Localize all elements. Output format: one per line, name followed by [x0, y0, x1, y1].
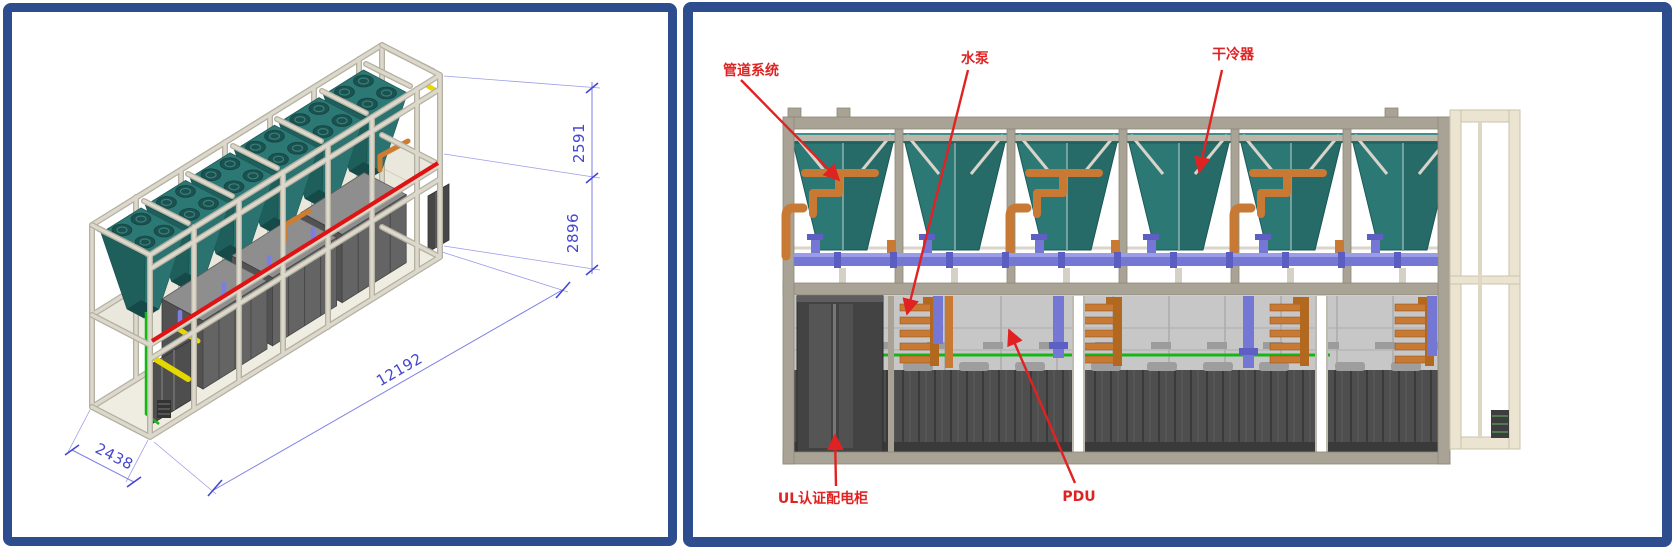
dim-lower-height: 2896 — [564, 213, 582, 253]
ul-cabinet-label: UL认证配电柜 — [778, 490, 868, 507]
ul-cabinet-arrow — [835, 435, 836, 486]
end-frame-bay — [1450, 110, 1520, 449]
bottom-beam — [783, 452, 1450, 464]
elevation-view-drawing: 管道系统 水泵 干冷器 UL认证配电柜 PDU — [693, 12, 1662, 537]
dimension-height-lower: 2896 — [444, 213, 600, 275]
isometric-view-panel: 2591 2896 12192 2438 — [3, 3, 677, 546]
ul-power-cabinet — [797, 296, 883, 452]
isometric-view-drawing: 2591 2896 12192 2438 — [12, 12, 668, 537]
dim-width: 2438 — [92, 439, 136, 473]
piping-label: 管道系统 — [723, 62, 779, 79]
piping-system — [786, 173, 1438, 268]
page: { "left_panel": { "dimensions": { "upper… — [0, 0, 1674, 549]
pdu-label: PDU — [1062, 489, 1095, 505]
orange-riser — [945, 296, 953, 368]
dry-cooler-label: 干冷器 — [1212, 46, 1255, 63]
dim-upper-height: 2591 — [570, 123, 588, 163]
mid-beam — [783, 283, 1450, 295]
cabinet-handles — [903, 362, 1421, 371]
top-beam — [783, 117, 1450, 129]
pump-label: 水泵 — [961, 50, 989, 67]
lower-level — [794, 296, 1438, 452]
elevation-view-panel: 管道系统 水泵 干冷器 UL认证配电柜 PDU — [683, 2, 1672, 547]
